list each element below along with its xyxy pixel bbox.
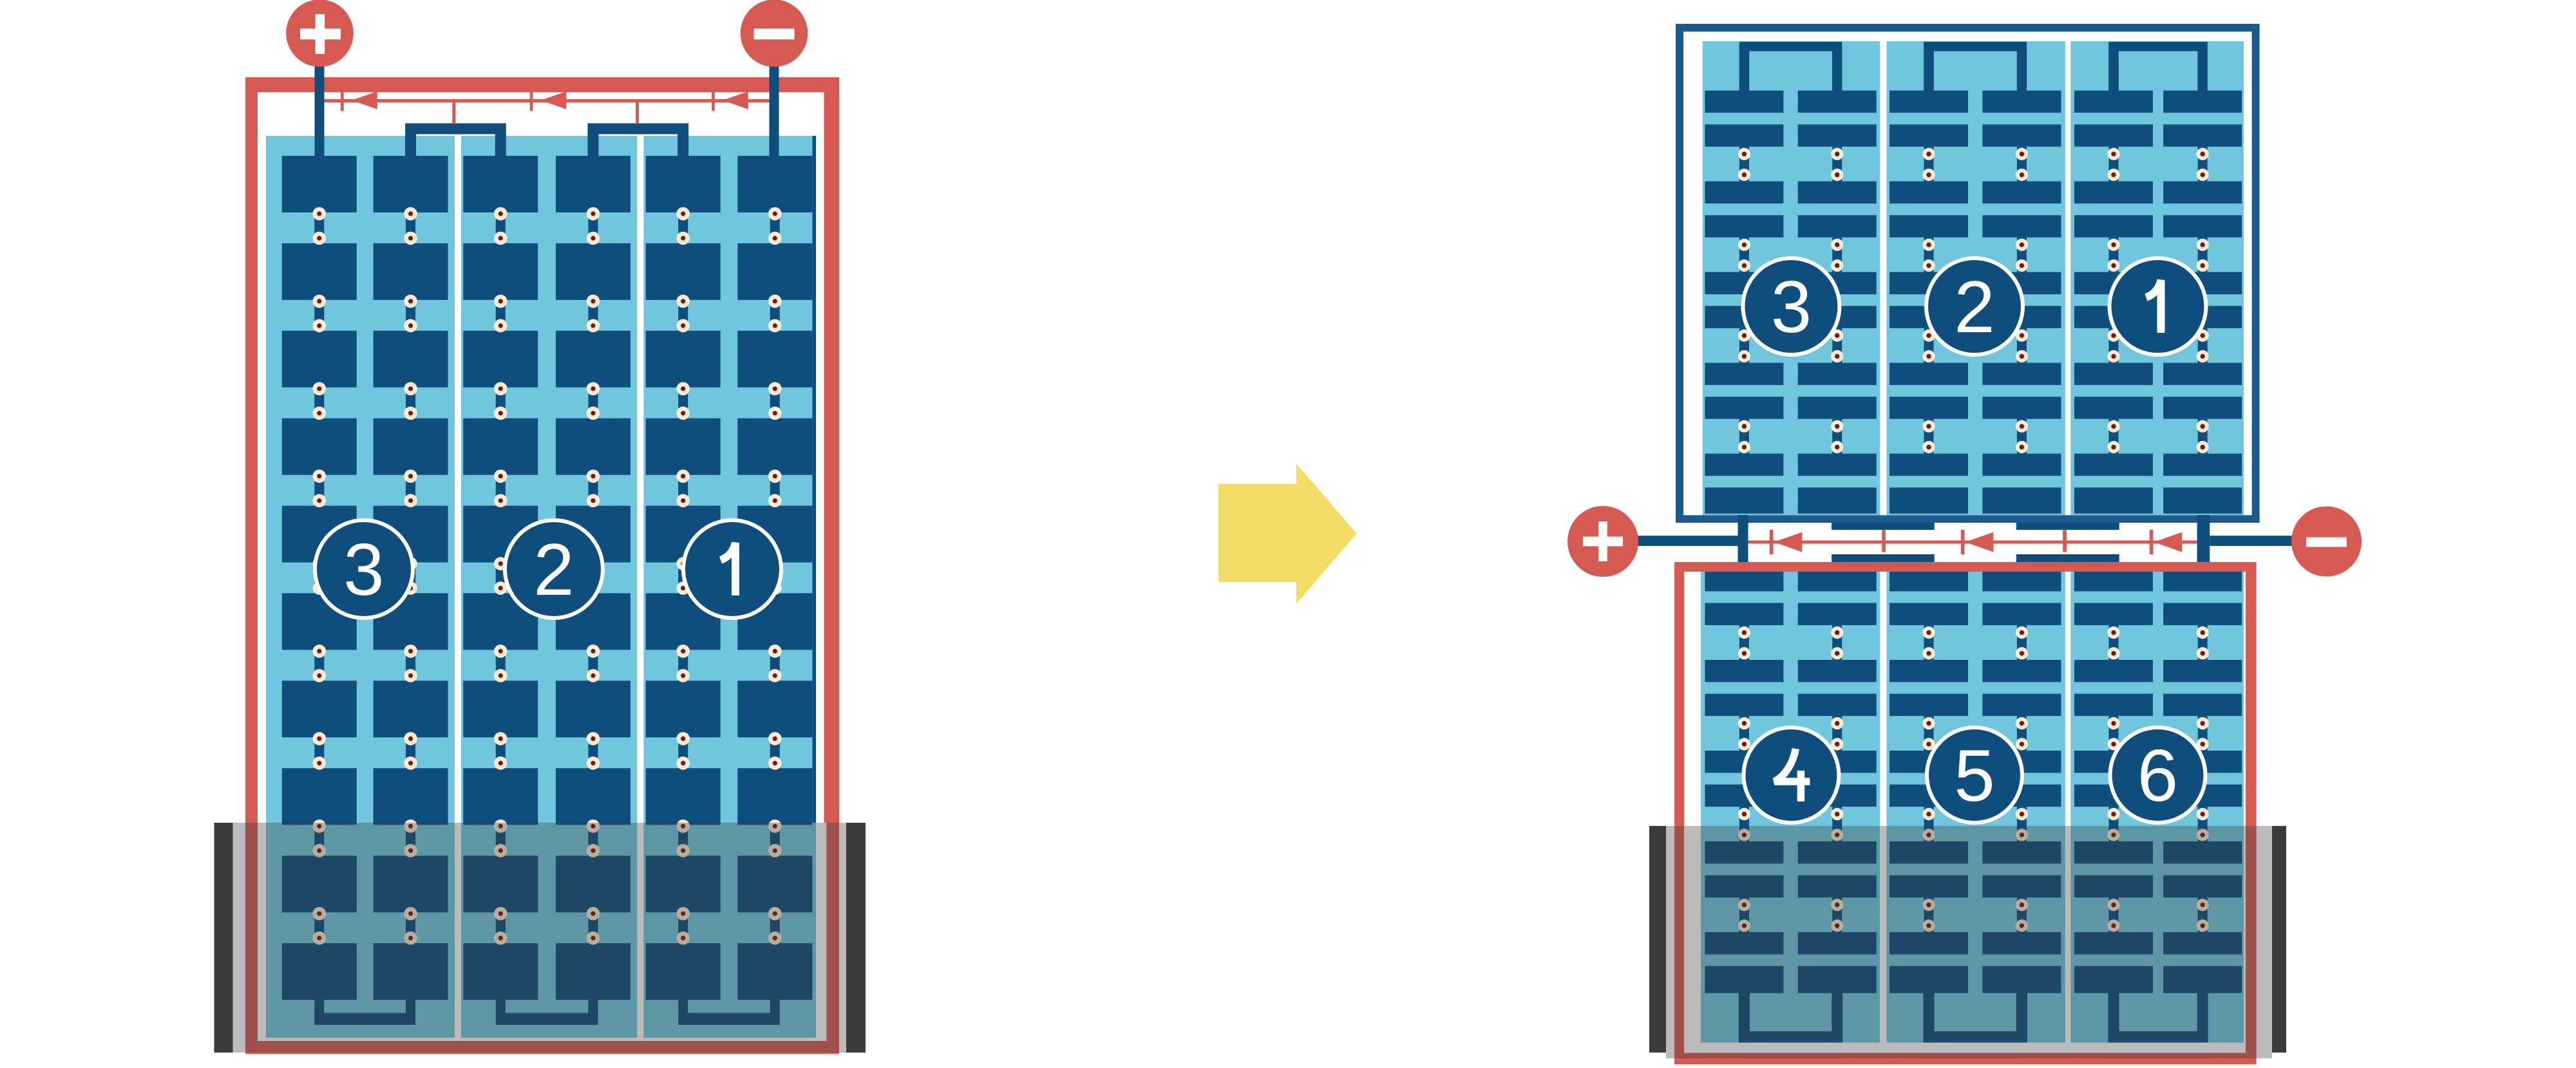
svg-text:3: 3: [343, 529, 384, 611]
svg-text:6: 6: [2137, 735, 2178, 817]
svg-text:5: 5: [1954, 735, 1994, 817]
svg-text:2: 2: [1954, 267, 1994, 348]
svg-text:2: 2: [533, 529, 574, 611]
svg-text:3: 3: [1771, 267, 1812, 348]
